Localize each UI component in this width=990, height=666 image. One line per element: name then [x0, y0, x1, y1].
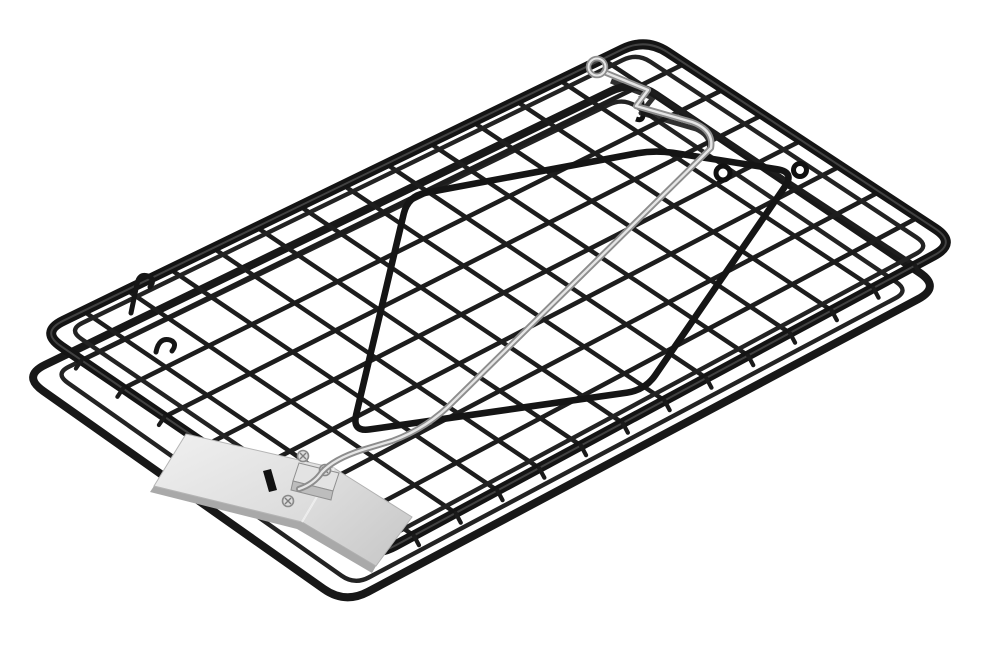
hinge-stub-lower [156, 340, 175, 353]
rivet [298, 451, 309, 462]
spring-rod [299, 59, 711, 490]
product-photo-wire-trap: Product photo of a flat black wire-mesh … [0, 0, 990, 660]
bail-hinge-knuckle-icon [716, 166, 730, 180]
rivet [283, 496, 294, 507]
mesh-wire-cross [559, 80, 873, 288]
bail-hinge-knuckle-icon [794, 164, 807, 177]
trap-illustration [0, 0, 990, 660]
